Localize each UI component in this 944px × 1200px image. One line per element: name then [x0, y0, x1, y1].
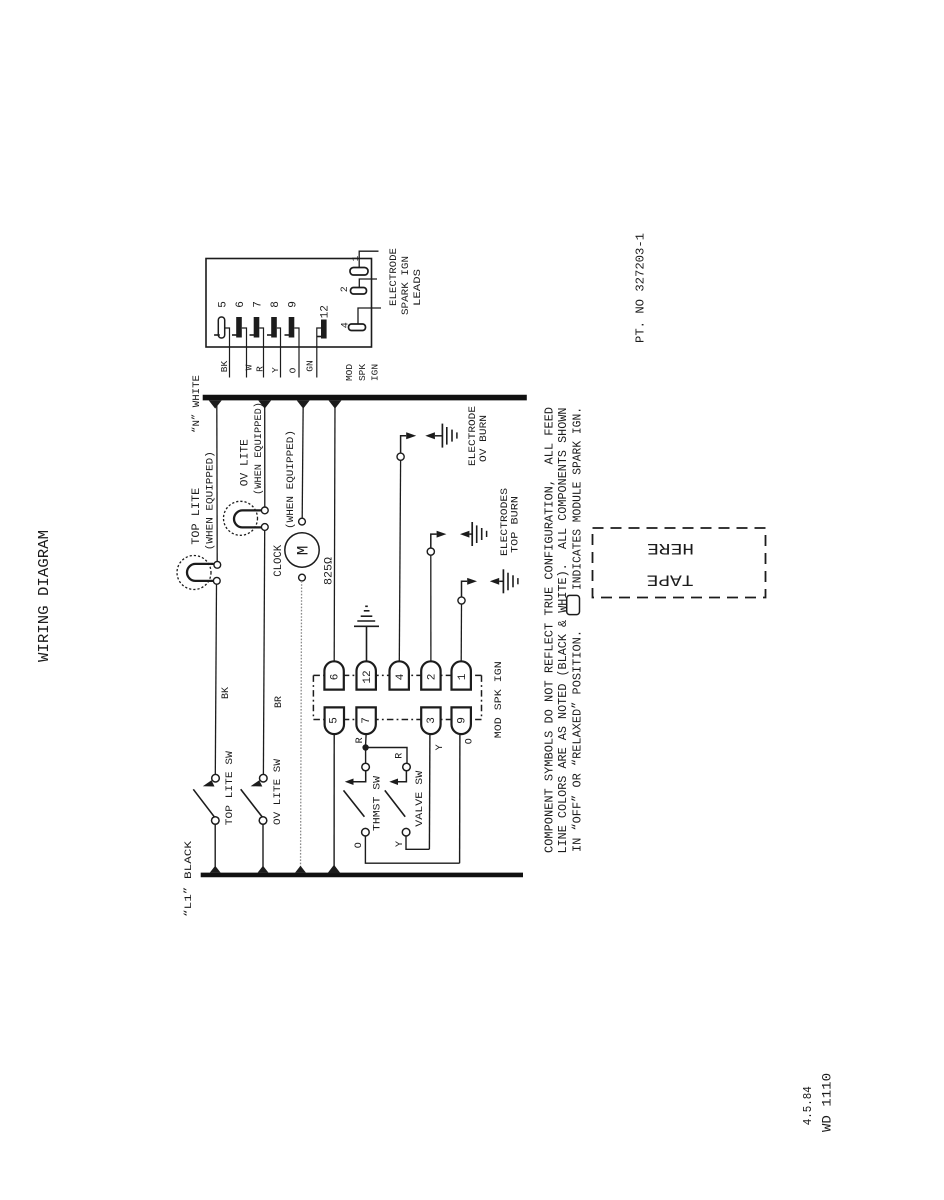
svg-text:O: O	[354, 842, 365, 848]
svg-text:9: 9	[287, 301, 299, 308]
svg-text:Y: Y	[435, 744, 446, 750]
svg-text:R: R	[254, 366, 265, 372]
svg-text:(WHEN EQUIPPED): (WHEN EQUIPPED)	[204, 451, 216, 550]
svg-text:BK: BK	[221, 687, 232, 699]
svg-text:TOP LITE: TOP LITE	[191, 487, 203, 544]
svg-text:(WHEN EQUIPPED): (WHEN EQUIPPED)	[285, 430, 297, 529]
svg-text:1: 1	[457, 673, 469, 680]
svg-text:O: O	[288, 367, 299, 373]
svg-text:GN: GN	[305, 360, 316, 371]
svg-text:ELECTRODES: ELECTRODES	[500, 488, 511, 556]
svg-text:IN “OFF” OR “RELAXED” POSITION: IN “OFF” OR “RELAXED” POSITION.	[570, 630, 584, 852]
svg-text:3: 3	[426, 717, 438, 724]
svg-text:(WHEN EQUIPPED): (WHEN EQUIPPED)	[253, 402, 265, 495]
svg-text:COMPONENT SYMBOLS DO NOT REFLE: COMPONENT SYMBOLS DO NOT REFLECT TRUE CO…	[542, 407, 556, 853]
svg-text:7: 7	[361, 717, 373, 724]
svg-text:5: 5	[218, 301, 230, 308]
svg-text:Y: Y	[395, 841, 406, 847]
svg-text:W: W	[244, 364, 255, 370]
svg-text:BK: BK	[219, 361, 230, 373]
svg-text:2: 2	[340, 286, 351, 292]
svg-text:M: M	[295, 546, 313, 556]
svg-text:TOP BURN: TOP BURN	[510, 496, 521, 553]
svg-text:BR: BR	[274, 696, 285, 708]
svg-text:TAPE: TAPE	[647, 571, 694, 589]
svg-text:VALVE SW: VALVE SW	[414, 770, 426, 827]
svg-text:OV LITE: OV LITE	[239, 439, 251, 486]
svg-text:4: 4	[395, 673, 407, 680]
svg-text:LINE COLORS ARE AS NOTED (BLAC: LINE COLORS ARE AS NOTED (BLACK & WHITE)…	[556, 408, 570, 854]
svg-text:8: 8	[270, 301, 282, 308]
svg-text:THMST SW: THMST SW	[372, 775, 384, 831]
svg-text:Y: Y	[270, 367, 281, 373]
svg-text:MOD SPK IGN: MOD SPK IGN	[493, 661, 505, 738]
svg-text:6: 6	[330, 674, 342, 681]
svg-text:12: 12	[319, 305, 331, 318]
svg-text:TOP LITE SW: TOP LITE SW	[224, 750, 236, 825]
svg-text:LEADS: LEADS	[413, 269, 424, 306]
svg-text:9: 9	[457, 717, 469, 724]
svg-text:OV LITE SW: OV LITE SW	[272, 758, 284, 825]
svg-text:HERE: HERE	[647, 539, 694, 557]
svg-text:“L1” BLACK: “L1” BLACK	[183, 840, 195, 917]
svg-text:ELECTRODE: ELECTRODE	[389, 248, 400, 306]
svg-text:SPK: SPK	[357, 364, 368, 381]
svg-text:OV BURN: OV BURN	[479, 415, 490, 462]
svg-text:CLOCK: CLOCK	[273, 544, 285, 576]
svg-text:PT. NO 327203-1: PT. NO 327203-1	[633, 233, 647, 343]
svg-text:MOD: MOD	[344, 364, 355, 381]
svg-text:825Ω: 825Ω	[324, 557, 336, 585]
svg-text:O: O	[464, 738, 475, 744]
svg-text:IGN: IGN	[369, 364, 380, 381]
svg-text:INDICATES MODULE SPARK IGN.: INDICATES MODULE SPARK IGN.	[570, 407, 584, 590]
svg-text:WD 1110: WD 1110	[820, 1073, 835, 1132]
svg-text:2: 2	[427, 674, 439, 681]
svg-text:5: 5	[329, 717, 341, 724]
svg-text:SPARK IGN: SPARK IGN	[401, 256, 412, 315]
svg-text:R: R	[355, 737, 366, 743]
svg-text:12: 12	[362, 670, 374, 683]
svg-text:4.5.84: 4.5.84	[802, 1086, 815, 1125]
svg-text:7: 7	[252, 301, 264, 308]
svg-text:R: R	[395, 753, 406, 759]
svg-text:ELECTRODE: ELECTRODE	[468, 406, 479, 466]
svg-text:6: 6	[235, 301, 247, 308]
svg-text:WIRING DIAGRAM: WIRING DIAGRAM	[37, 530, 53, 662]
svg-text:“N” WHITE: “N” WHITE	[191, 375, 203, 433]
